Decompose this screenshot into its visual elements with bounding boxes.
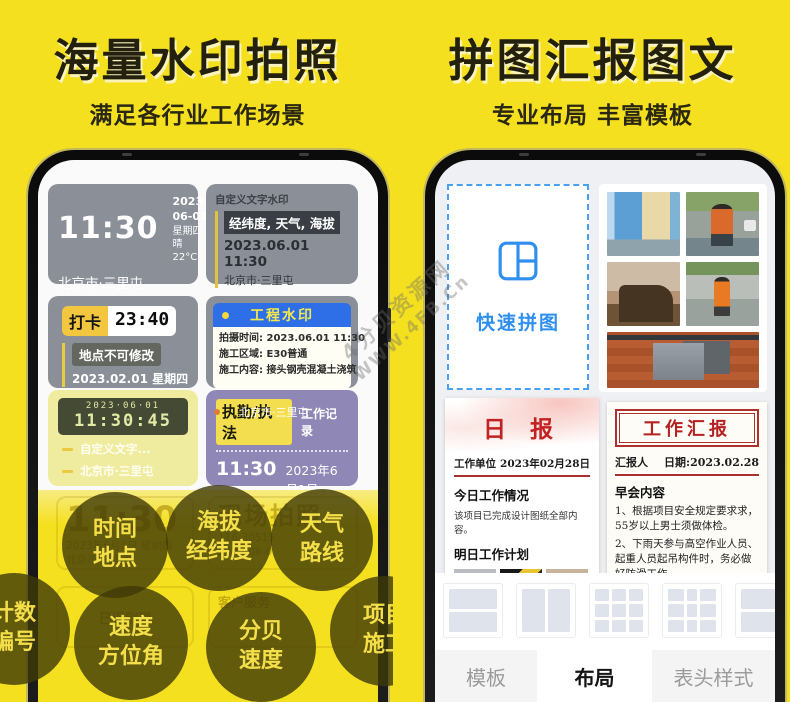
left-panel: 海量水印拍照 满足各行业工作场景 11:30 2023-06-01 星期四 晴 … bbox=[0, 0, 395, 702]
quick-collage-button[interactable]: 快速拼图 bbox=[447, 184, 589, 390]
photo-recycle-bins[interactable] bbox=[607, 192, 680, 256]
daily-report-date: 2023年02月28日 bbox=[500, 456, 590, 471]
card-label: 自定义文字水印 bbox=[215, 192, 349, 207]
reporter-label: 汇报人 bbox=[615, 454, 648, 470]
photo-worker-back[interactable] bbox=[686, 192, 759, 256]
meeting-section-heading: 早会内容 bbox=[615, 482, 759, 501]
bottom-sheet: 模板 布局 表头样式 bbox=[435, 573, 775, 702]
tab-template[interactable]: 模板 bbox=[435, 650, 537, 702]
collage-icon bbox=[497, 240, 539, 282]
right-phone-screen: 快速拼图 日 报 工作单位 2023年02月28日 今日工作情况 bbox=[435, 160, 775, 702]
left-subtitle: 满足各行业工作场景 bbox=[0, 96, 395, 130]
layout-thumbnails bbox=[443, 583, 775, 638]
location-text: 北京市·三里屯 bbox=[224, 272, 349, 288]
power-button bbox=[387, 308, 391, 342]
work-report-para1: 1、根据项目安全规定要求求，55岁以上男士须做体检。 bbox=[615, 504, 759, 534]
layout-grid-3x3[interactable] bbox=[589, 583, 649, 638]
daily-report-card[interactable]: 日 报 工作单位 2023年02月28日 今日工作情况 该项目已完成设计图纸全部… bbox=[445, 398, 599, 578]
today-body: 该项目已完成设计图纸全部内容。 bbox=[454, 508, 590, 536]
punch-date: 2023.02.01 星期四 bbox=[72, 370, 198, 387]
layout-two-columns[interactable] bbox=[516, 583, 576, 638]
right-phone: 快速拼图 日 报 工作单位 2023年02月28日 今日工作情况 bbox=[425, 150, 785, 702]
bubble-decibel-speed: 分贝速度 bbox=[206, 592, 316, 702]
punch-time: 23:40 bbox=[108, 306, 176, 336]
lcd-time: 11:30:45 bbox=[58, 411, 188, 431]
duty-watermark-card[interactable]: 执勤/执法 工作记录 11:30 2023年6月1日 北京市·三里屯 bbox=[206, 390, 358, 486]
bubble-project-construction: 项目施工 bbox=[330, 576, 393, 686]
dotted-divider bbox=[216, 450, 348, 452]
tab-header-style[interactable]: 表头样式 bbox=[652, 650, 775, 702]
photo-street-sweeper[interactable] bbox=[686, 262, 759, 326]
punch-watermark-card[interactable]: 打卡 23:40 地点不可修改 2023.02.01 星期四 bbox=[48, 296, 198, 388]
weekday-weather: 星期四 晴 22°C bbox=[173, 225, 208, 264]
pin-icon bbox=[214, 409, 220, 415]
photo-grid-card bbox=[599, 184, 767, 392]
engineering-row: 拍摄时间: 2023.06.01 11:30 bbox=[219, 331, 345, 347]
feature-bubbles: 时间地点 海拔经纬度 天气路线 计数编号 速度方位角 分贝速度 项目施工 bbox=[0, 480, 393, 702]
layout-grid-3x3-narrow[interactable] bbox=[662, 583, 722, 638]
duty-time: 11:30 bbox=[216, 458, 276, 480]
location-text: 北京市·三里屯 bbox=[58, 272, 188, 292]
date-value: 2023-06-01 bbox=[173, 194, 208, 225]
work-report-card[interactable]: 工作汇报 汇报人 日期:2023.02.28 早会内容 1、根据项目安全规定要求… bbox=[607, 402, 767, 578]
bubble-count-number: 计数编号 bbox=[0, 573, 70, 685]
bubble-speed-azimuth: 速度方位角 bbox=[74, 586, 188, 700]
quick-collage-label: 快速拼图 bbox=[476, 308, 560, 335]
engineering-row: 施工内容: 接头钢壳混凝土浇筑 bbox=[219, 363, 345, 379]
punch-note: 地点不可修改 bbox=[72, 343, 161, 366]
layout-partial[interactable] bbox=[735, 583, 775, 638]
today-section-heading: 今日工作情况 bbox=[454, 485, 590, 504]
punch-tag: 打卡 bbox=[62, 306, 108, 336]
work-report-title: 工作汇报 bbox=[615, 409, 759, 447]
promo-canvas: 海量水印拍照 满足各行业工作场景 11:30 2023-06-01 星期四 晴 … bbox=[0, 0, 790, 702]
right-subtitle: 专业布局 丰富模板 bbox=[395, 96, 790, 130]
engineering-watermark-card[interactable]: 工程水印 拍摄时间: 2023.06.01 11:30 施工区域: E30普通 … bbox=[206, 296, 358, 388]
lcd-display: 2023·06·01 11:30:45 bbox=[58, 398, 188, 435]
engineering-row: 施工区域: E30普通 bbox=[219, 347, 345, 363]
lcd-watermark-card[interactable]: 2023·06·01 11:30:45 自定义文字... 北京市·三里屯 bbox=[48, 390, 198, 486]
left-title: 海量水印拍照 bbox=[0, 24, 395, 89]
tomorrow-section-heading: 明日工作计划 bbox=[454, 544, 590, 563]
unit-label: 工作单位 bbox=[454, 456, 496, 471]
lcd-line1: 自定义文字... bbox=[80, 441, 151, 457]
engineering-title: 工程水印 bbox=[250, 305, 314, 325]
highlight-text: 经纬度, 天气, 海拔 bbox=[224, 211, 340, 234]
lcd-line2: 北京市·三里屯 bbox=[80, 463, 153, 479]
bubble-altitude-latlong: 海拔经纬度 bbox=[166, 485, 272, 591]
work-report-date: 日期:2023.02.28 bbox=[664, 454, 759, 470]
bubble-time-location: 时间地点 bbox=[62, 492, 168, 598]
right-title: 拼图汇报图文 bbox=[395, 24, 790, 89]
time-value: 11:30 bbox=[58, 214, 159, 244]
bubble-weather-route: 天气路线 bbox=[271, 489, 373, 591]
tab-bar: 模板 布局 表头样式 bbox=[435, 650, 775, 702]
lcd-date: 2023·06·01 bbox=[58, 401, 188, 411]
custom-text-watermark-card[interactable]: 自定义文字水印 经纬度, 天气, 海拔 2023.06.01 11:30 北京市… bbox=[206, 184, 358, 284]
dash-icon bbox=[62, 470, 73, 473]
tab-layout[interactable]: 布局 bbox=[537, 650, 652, 702]
daily-report-title: 日 报 bbox=[454, 410, 590, 444]
photo-excavator-dusk[interactable] bbox=[607, 262, 680, 326]
work-report-para2: 2、下雨天参与高空作业人员、起重人员起吊构件时，务必做好防滑工作。 bbox=[615, 537, 759, 578]
duty-location: 北京市·三里屯 bbox=[239, 404, 309, 420]
time-watermark-card[interactable]: 11:30 2023-06-01 星期四 晴 22°C 北京市·三里屯 bbox=[48, 184, 198, 284]
datetime-text: 2023.06.01 11:30 bbox=[224, 238, 349, 270]
right-panel: 拼图汇报图文 专业布局 丰富模板 快速拼图 bbox=[395, 0, 790, 702]
bullet-icon bbox=[222, 312, 229, 319]
dash-icon bbox=[62, 448, 73, 451]
layout-two-rows[interactable] bbox=[443, 583, 503, 638]
photo-electrical-box[interactable] bbox=[607, 332, 759, 388]
